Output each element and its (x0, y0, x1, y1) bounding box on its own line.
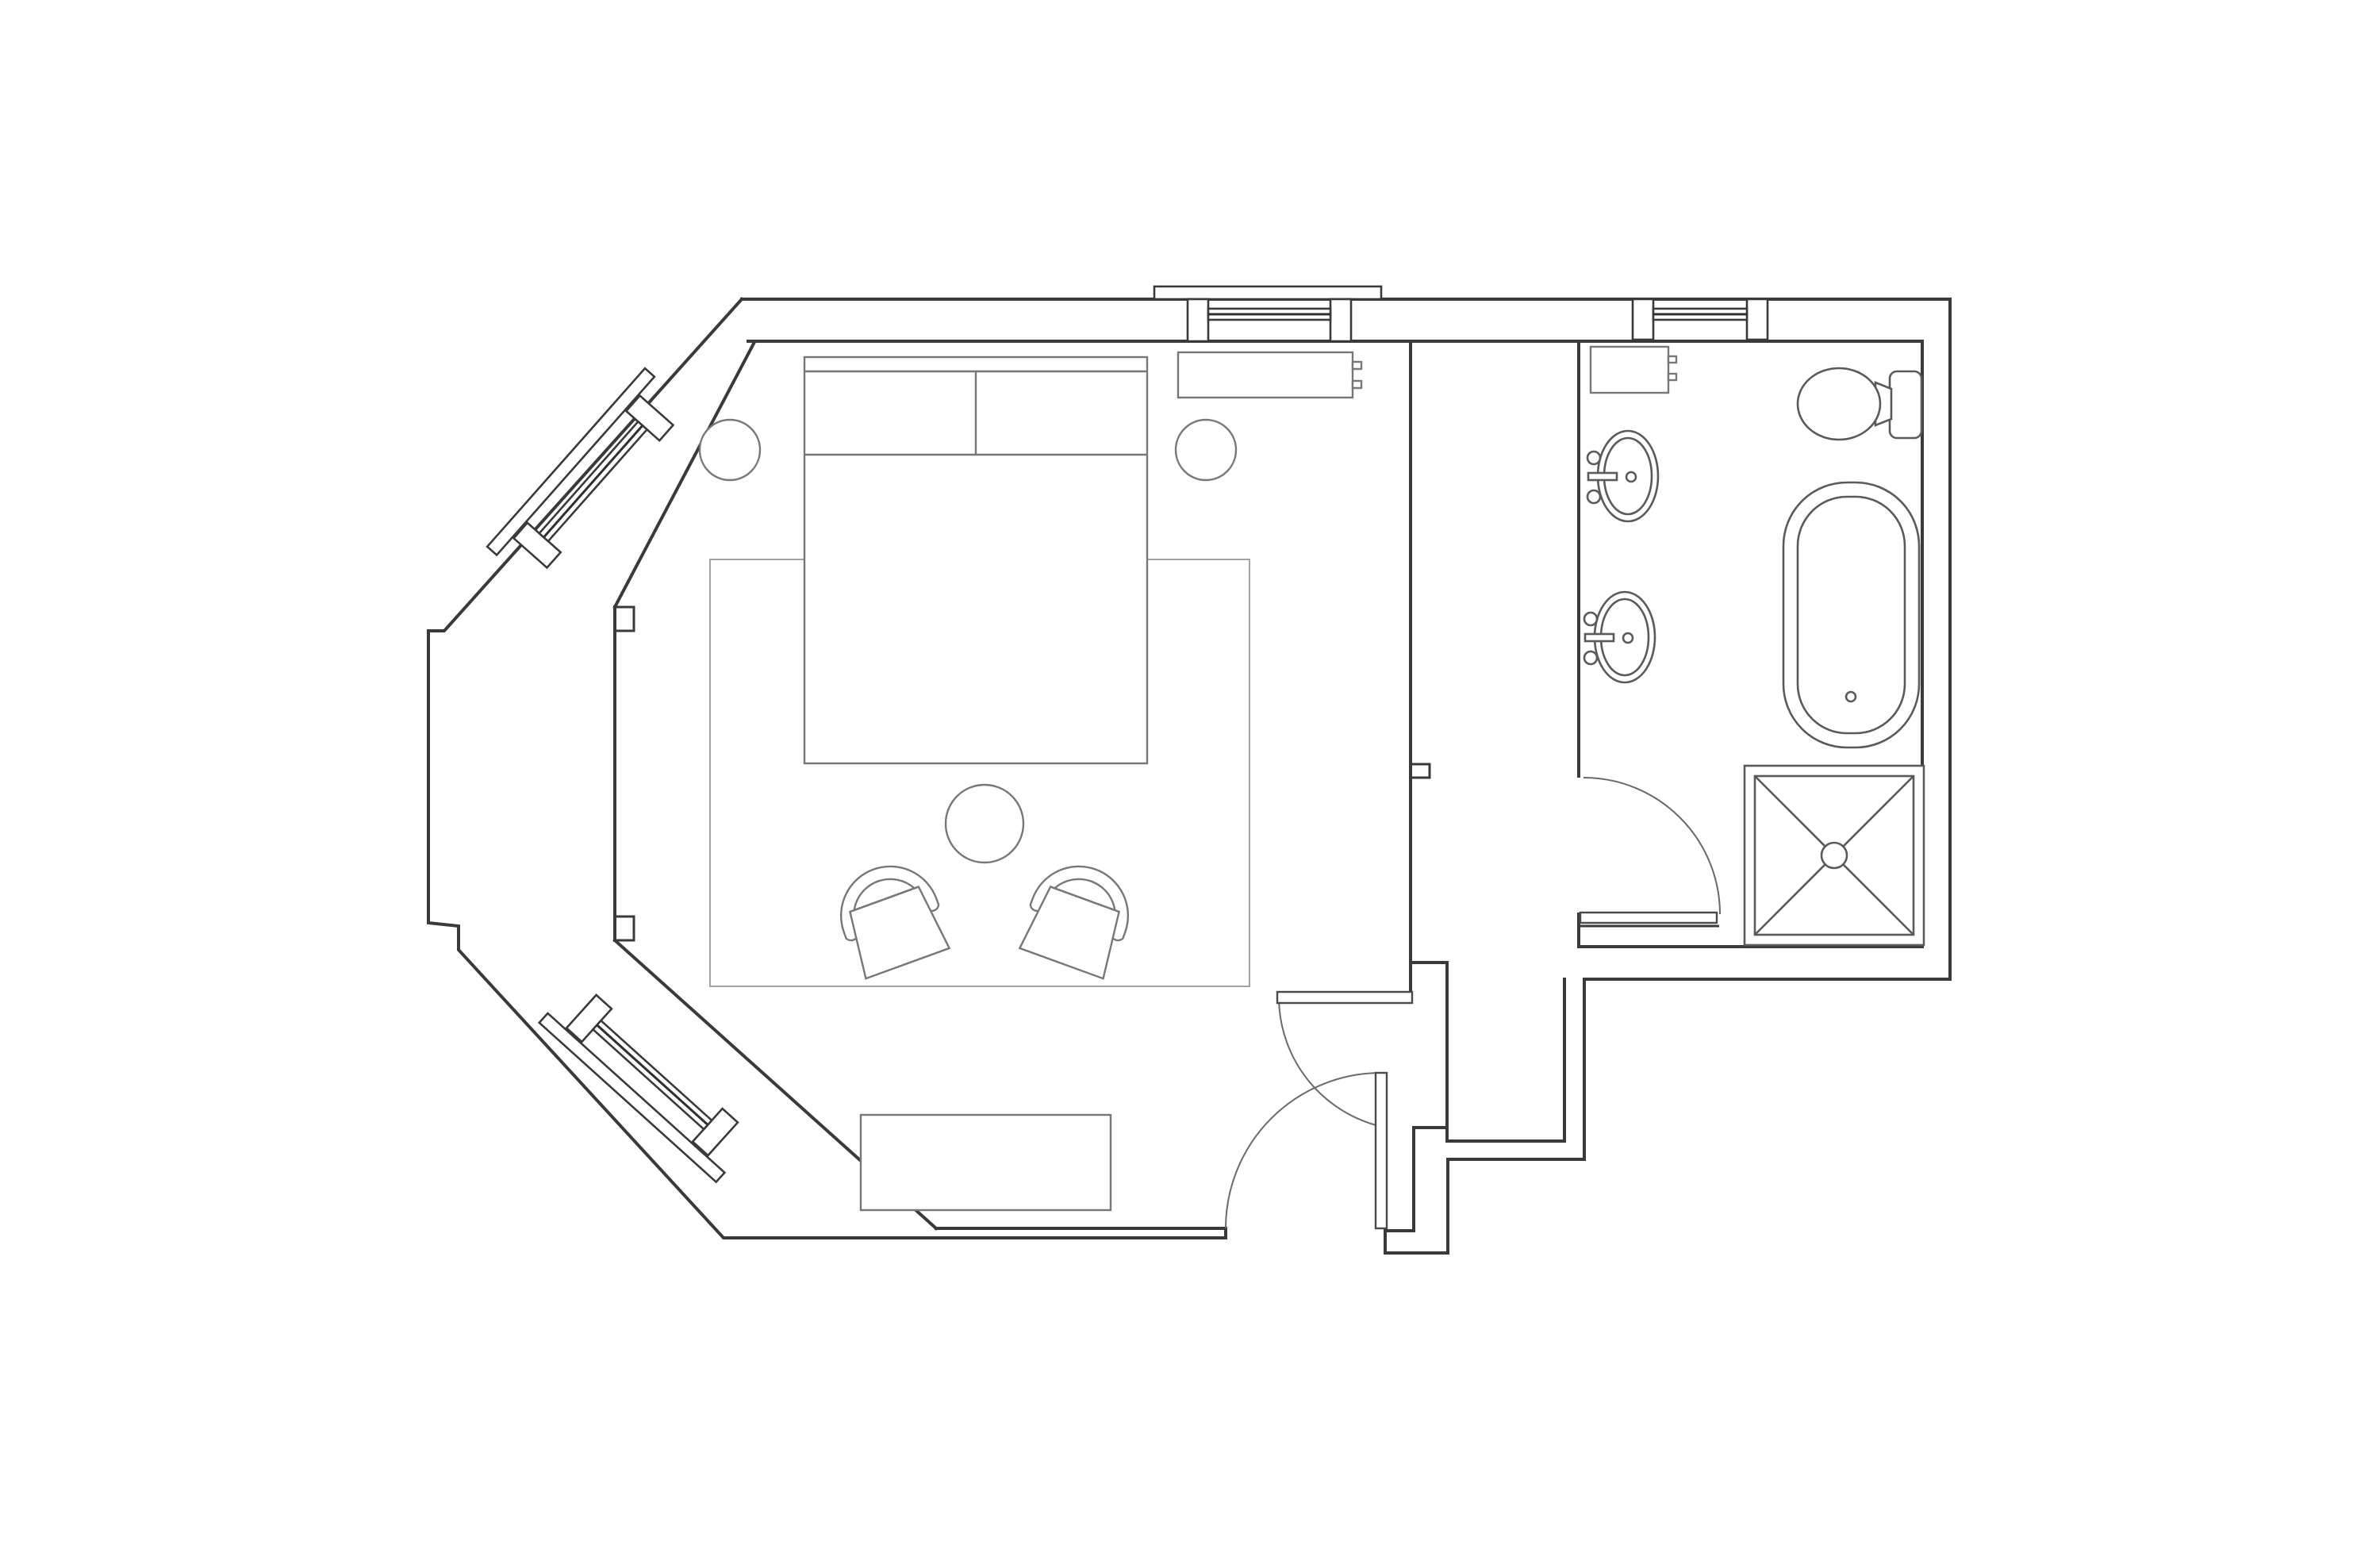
sink-upper (1587, 431, 1658, 521)
radiator-knob-2 (1353, 381, 1361, 388)
round-side-table (946, 785, 1023, 863)
toilet (1798, 368, 1921, 440)
sink-drain (1626, 472, 1636, 482)
bedroom-radiator (1178, 352, 1361, 398)
toilet-bowl (1798, 368, 1880, 440)
window-jamb-right (1747, 299, 1768, 340)
bay-window-lower (539, 979, 755, 1182)
window-sill (487, 368, 654, 555)
window-sill (539, 1013, 725, 1182)
window-jamb-left (1188, 299, 1208, 341)
window-jamb-right (1330, 299, 1351, 341)
floor-plan-canvas (0, 0, 2380, 1541)
sink-handle-top (1587, 452, 1600, 464)
nightstand-lamp-left (700, 420, 760, 480)
double-bed (804, 357, 1147, 763)
bedroom-door (1277, 992, 1412, 1128)
bathtub (1783, 482, 1919, 747)
nightstand-lamp-right (1176, 420, 1236, 480)
sink-drain (1623, 633, 1633, 643)
bay-jamb-lower (615, 917, 634, 940)
bathroom-north-window (1633, 299, 1768, 340)
bay-window-upper (487, 368, 689, 586)
wall-bedroom-east-jog (1411, 764, 1430, 778)
bathroom-door (1580, 778, 1720, 923)
sink-spout (1585, 634, 1614, 641)
radiator-knob-1 (1353, 362, 1361, 369)
bedroom-furniture (700, 352, 1361, 1210)
toilet-tank (1890, 371, 1921, 438)
armchair-left (827, 852, 954, 980)
bay-jamb-upper (615, 607, 634, 631)
entry-door-leaf (1376, 1073, 1387, 1228)
window-jamb-left (1633, 299, 1653, 340)
bathtub-drain (1846, 692, 1856, 701)
sink-handle-bottom (1584, 651, 1597, 664)
bathroom-radiator (1591, 347, 1676, 393)
armchair-right (1015, 852, 1142, 980)
radiator-body (1178, 352, 1353, 398)
shower (1745, 766, 1924, 945)
bedroom-north-window (1154, 286, 1381, 341)
radiator-knob-2 (1668, 374, 1676, 380)
bathroom-fixtures (1584, 347, 1924, 945)
entry-door-swing-arc (1226, 1073, 1381, 1228)
bathroom-door-leaf (1580, 913, 1717, 923)
shower-drain (1821, 843, 1847, 868)
radiator-body (1591, 347, 1668, 393)
window-sill (1154, 286, 1381, 299)
console-credenza (861, 1115, 1111, 1210)
sink-lower (1584, 592, 1655, 682)
sink-handle-bottom (1587, 490, 1600, 503)
bedroom-door-swing-arc (1279, 998, 1386, 1128)
floor-plan-page (0, 0, 2380, 1541)
radiator-knob-1 (1668, 356, 1676, 363)
sink-handle-top (1584, 613, 1597, 625)
bedroom-door-leaf (1277, 992, 1412, 1003)
sink-spout (1588, 473, 1617, 480)
entry-door (1226, 1073, 1387, 1228)
bathroom-door-swing-arc (1583, 778, 1720, 914)
